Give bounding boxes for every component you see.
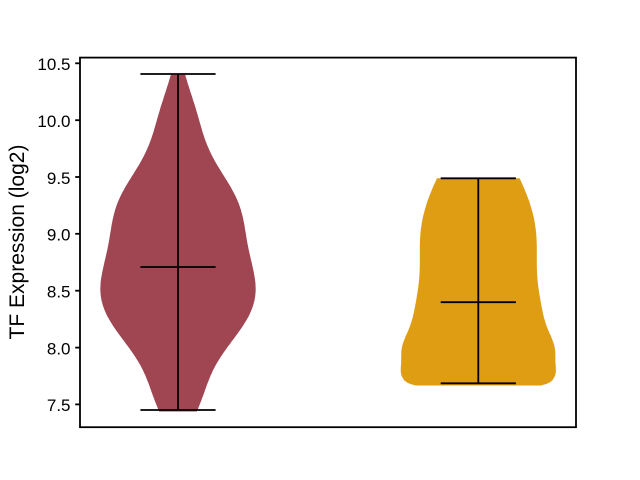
svg-text:10.5: 10.5 bbox=[37, 55, 70, 74]
svg-text:8.5: 8.5 bbox=[47, 283, 71, 302]
svg-text:TF Expression (log2): TF Expression (log2) bbox=[6, 145, 29, 340]
svg-text:8.0: 8.0 bbox=[47, 339, 71, 358]
svg-text:9.0: 9.0 bbox=[47, 226, 71, 245]
svg-text:7.5: 7.5 bbox=[47, 396, 71, 415]
svg-text:9.5: 9.5 bbox=[47, 169, 71, 188]
svg-text:10.0: 10.0 bbox=[37, 112, 70, 131]
